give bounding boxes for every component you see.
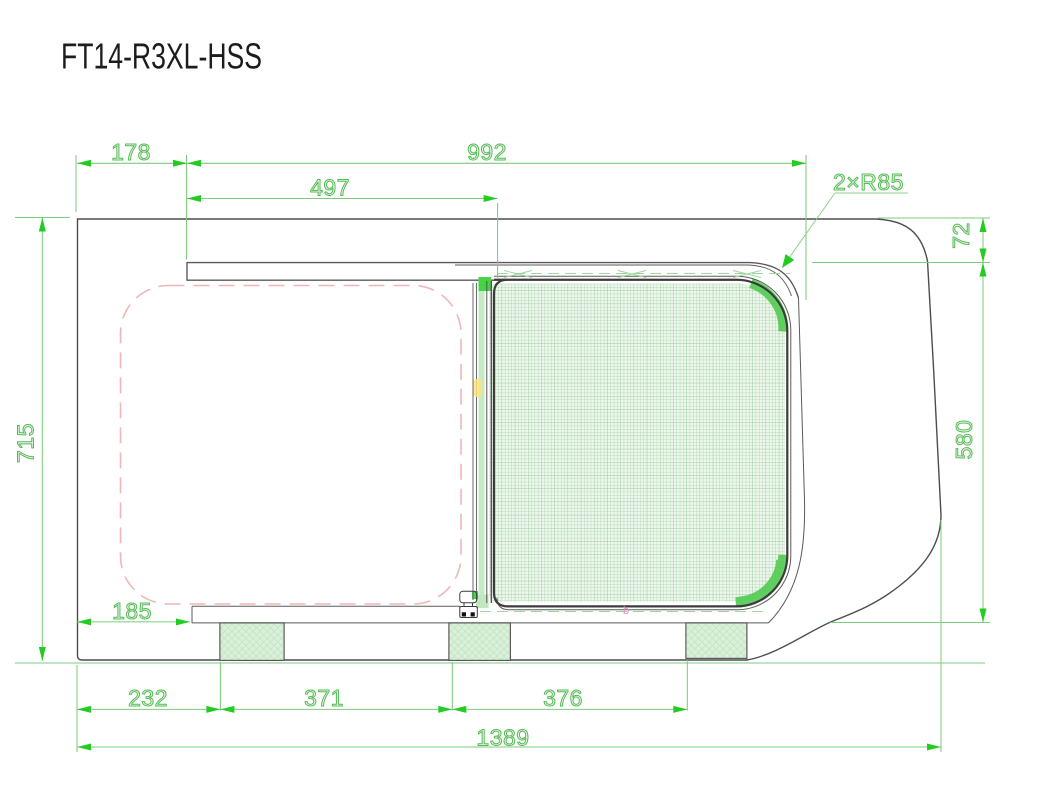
svg-text:72: 72	[948, 222, 974, 249]
svg-text:232: 232	[128, 685, 168, 711]
svg-text:371: 371	[304, 685, 344, 711]
svg-text:2×R85: 2×R85	[833, 169, 904, 195]
svg-text:b: b	[623, 605, 629, 617]
svg-text:178: 178	[111, 139, 151, 165]
svg-text:FT14-R3XL-HSS: FT14-R3XL-HSS	[61, 36, 262, 77]
svg-text:992: 992	[467, 139, 507, 165]
svg-text:497: 497	[310, 175, 350, 201]
svg-text:185: 185	[112, 598, 152, 624]
svg-text:580: 580	[951, 420, 977, 460]
svg-text:715: 715	[13, 423, 39, 463]
svg-text:376: 376	[543, 685, 583, 711]
svg-text:1389: 1389	[476, 725, 529, 751]
